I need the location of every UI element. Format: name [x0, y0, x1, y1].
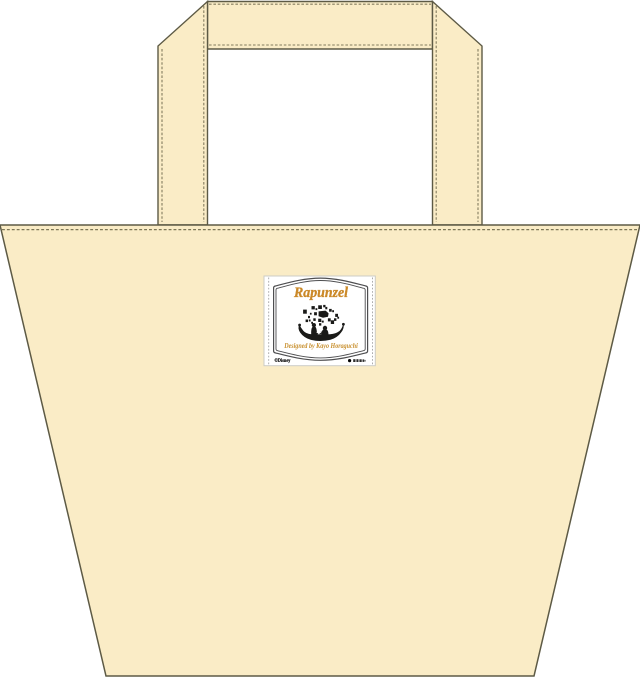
svg-text:©Disney: ©Disney [274, 357, 290, 364]
svg-text:Designed by Kayo Horaguchi: Designed by Kayo Horaguchi [283, 341, 358, 350]
svg-text:Rapunzel: Rapunzel [293, 285, 349, 301]
